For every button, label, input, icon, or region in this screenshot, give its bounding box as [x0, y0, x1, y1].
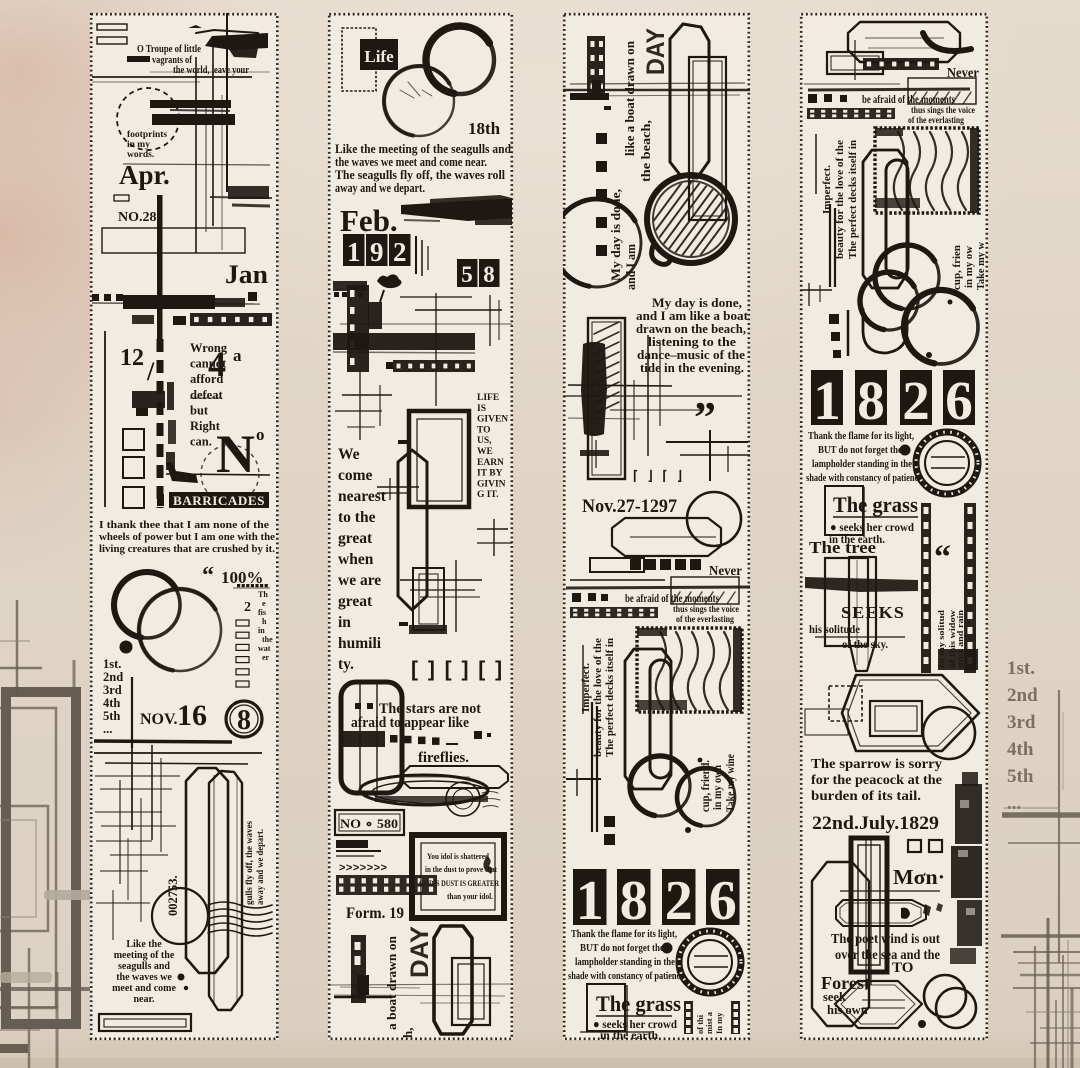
svg-text:come: come: [338, 467, 373, 484]
svg-text:living creatures that are crus: living creatures that are crushed by it.: [99, 544, 275, 555]
svg-text:lampholder standing in the: lampholder standing in the: [575, 957, 675, 968]
svg-text:footprints: footprints: [127, 130, 167, 140]
svg-text:Life: Life: [364, 47, 394, 66]
svg-text:seagulls and: seagulls and: [118, 961, 170, 972]
svg-text:beauty for the love of the: beauty for the love of the: [593, 638, 604, 757]
svg-text:near.: near.: [133, 994, 155, 1005]
svg-text:2nd: 2nd: [1007, 685, 1038, 706]
svg-text:Never: Never: [709, 563, 742, 578]
svg-text:2: 2: [393, 237, 407, 267]
svg-text:Mσn·: Mσn·: [893, 865, 945, 889]
svg-text:and I am: and I am: [623, 244, 638, 290]
svg-text:WE: WE: [477, 447, 493, 457]
svg-text:8: 8: [857, 370, 885, 431]
svg-text:in my ow: in my ow: [963, 246, 975, 288]
svg-text:away and we depart.: away and we depart.: [256, 829, 266, 905]
svg-text:Thank the flame for its light,: Thank the flame for its light,: [808, 431, 914, 442]
svg-text:NO.28: NO.28: [118, 210, 157, 225]
svg-text:in: in: [338, 614, 351, 631]
svg-text:5th: 5th: [103, 709, 120, 723]
svg-text:BARRICADES: BARRICADES: [173, 493, 265, 508]
svg-text:than your idol.: than your idol.: [447, 891, 493, 901]
svg-text:Form. 19: Form. 19: [346, 905, 404, 922]
svg-text:The poet wind is out: The poet wind is out: [831, 931, 940, 946]
svg-text:of the everlasting: of the everlasting: [908, 116, 964, 126]
svg-text:ty.: ty.: [338, 656, 354, 673]
svg-text:LIFE: LIFE: [477, 393, 499, 403]
svg-text:nearest: nearest: [338, 488, 387, 505]
svg-text:beauty for the love of the: beauty for the love of the: [835, 140, 846, 259]
svg-text:the world, leave your: the world, leave your: [173, 65, 249, 76]
svg-text:gulls fly off, the waves: gulls fly off, the waves: [245, 821, 255, 905]
svg-text:16: 16: [177, 699, 207, 732]
svg-text:1st.: 1st.: [103, 657, 121, 671]
svg-text:the: the: [262, 635, 273, 644]
svg-text:2: 2: [244, 600, 251, 615]
svg-text:...: ...: [103, 722, 112, 736]
svg-text:O Troupe of little: O Troupe of little: [137, 44, 201, 55]
svg-text:cup, friend.: cup, friend.: [700, 760, 712, 812]
svg-text:burden of its tail.: burden of its tail.: [811, 789, 921, 804]
svg-text:in my: in my: [127, 140, 150, 150]
svg-text:GOD’S DUST IS GREATER: GOD’S DUST IS GREATER: [419, 878, 500, 888]
svg-text:when: when: [338, 551, 374, 568]
svg-text:1: 1: [813, 370, 841, 431]
svg-text:>>>>>>>: >>>>>>>: [339, 862, 387, 874]
svg-text:9: 9: [370, 237, 384, 267]
svg-text:like a boat drawn on: like a boat drawn on: [623, 41, 637, 156]
svg-text:the waves we: the waves we: [116, 972, 172, 983]
svg-text:shade with constancy of patien: shade with constancy of patience.: [568, 971, 686, 982]
svg-text:The perfect decks itself in: The perfect decks itself in: [605, 638, 616, 757]
svg-text:2: 2: [665, 870, 693, 932]
svg-text:shade with constancy of patien: shade with constancy of patience.: [806, 473, 924, 484]
svg-text:8: 8: [483, 262, 495, 287]
svg-text:in my own: in my own: [712, 764, 724, 810]
svg-text:in: in: [258, 626, 265, 635]
svg-text:great: great: [338, 593, 373, 610]
svg-text:TO: TO: [892, 960, 913, 976]
svg-text:GIVEN: GIVEN: [477, 415, 508, 425]
svg-text:we are: we are: [338, 572, 381, 589]
svg-text:his solitude: his solitude: [809, 624, 860, 636]
svg-text:SEEKS: SEEKS: [841, 603, 905, 622]
svg-text:The perfect decks itself in: The perfect decks itself in: [848, 140, 859, 259]
svg-text:The seagulls fly off, the wave: The seagulls fly off, the waves roll: [335, 168, 505, 182]
svg-text:thus sings the voice: thus sings the voice: [911, 106, 975, 116]
svg-text:er: er: [262, 653, 270, 662]
svg-text:1st.: 1st.: [1007, 658, 1035, 679]
svg-text:Like the meeting of the seagul: Like the meeting of the seagulls and: [335, 142, 511, 156]
svg-text:22nd.July.1829: 22nd.July.1829: [812, 813, 939, 834]
svg-text:DAY: DAY: [642, 28, 670, 75]
svg-text:but: but: [190, 403, 209, 417]
svg-text:tide in the evening.: tide in the evening.: [640, 361, 744, 375]
svg-text:”: ”: [694, 393, 716, 442]
svg-text:and I am like a boat: and I am like a boat: [636, 309, 749, 323]
svg-text:Imperfect.: Imperfect.: [822, 165, 833, 214]
svg-text:defeat: defeat: [190, 388, 223, 402]
svg-text:dance–music of the: dance–music of the: [637, 348, 745, 362]
svg-text:The sparrow is sorry: The sparrow is sorry: [811, 757, 942, 772]
svg-text:My day is done,: My day is done,: [652, 296, 742, 310]
svg-text:the beach,: the beach,: [639, 120, 653, 182]
svg-text:In my: In my: [714, 1012, 724, 1034]
svg-text:BUT do not forget the: BUT do not forget the: [580, 943, 665, 954]
svg-text:2nd: 2nd: [103, 670, 123, 684]
svg-text:8: 8: [237, 705, 251, 736]
svg-text:meeting of the: meeting of the: [114, 950, 175, 961]
svg-text:4th: 4th: [103, 696, 120, 710]
svg-text:...: ...: [1007, 793, 1021, 814]
svg-text:G IT.: G IT.: [477, 490, 498, 500]
svg-text:Th: Th: [258, 590, 268, 599]
svg-text:EARN: EARN: [477, 458, 504, 468]
svg-text:The grass: The grass: [833, 492, 918, 517]
svg-text:US,: US,: [477, 436, 492, 446]
svg-text:of the everlasting: of the everlasting: [676, 615, 734, 625]
svg-text:GIVIN: GIVIN: [477, 479, 506, 489]
svg-text:Take my w: Take my w: [975, 242, 987, 290]
svg-text:DAY: DAY: [406, 926, 434, 978]
svg-text:of the sky.: of the sky.: [842, 639, 888, 651]
svg-text:1: 1: [576, 870, 604, 932]
svg-text:over the sea and the: over the sea and the: [835, 947, 940, 962]
svg-text:thus sings the voice: thus sings the voice: [673, 605, 739, 615]
svg-text:fis: fis: [258, 608, 266, 617]
svg-text:meet and come: meet and come: [112, 983, 176, 994]
svg-text:IS: IS: [477, 404, 486, 414]
svg-text:6: 6: [945, 370, 973, 431]
svg-text:for the peacock at the: for the peacock at the: [811, 773, 942, 788]
svg-text:1: 1: [347, 237, 361, 267]
svg-text:listening to the: listening to the: [648, 335, 736, 349]
svg-text:Nov.27-1297: Nov.27-1297: [582, 497, 677, 517]
svg-text:18th: 18th: [468, 119, 501, 138]
svg-text:5: 5: [461, 262, 473, 287]
svg-text:3rd: 3rd: [103, 683, 122, 697]
svg-text:12: 12: [120, 345, 144, 371]
svg-text:to the: to the: [338, 509, 376, 526]
svg-text:3rd: 3rd: [1007, 712, 1036, 733]
svg-text:Jan: Jan: [225, 259, 268, 289]
svg-text:/: /: [146, 357, 155, 386]
svg-text:h,: h,: [400, 1028, 415, 1038]
svg-text:lampholder standing in the: lampholder standing in the: [812, 459, 912, 470]
svg-text:IT BY: IT BY: [477, 469, 503, 479]
svg-text:⌈ ⌋ ⌈ ⌋: ⌈ ⌋ ⌈ ⌋: [633, 468, 685, 483]
svg-text:afraid to appear like: afraid to appear like: [351, 715, 470, 731]
svg-text:TO: TO: [477, 425, 491, 435]
svg-text:a boat drawn on: a boat drawn on: [385, 936, 399, 1030]
svg-text:002753.: 002753.: [166, 875, 180, 916]
svg-text:drawn on the beach,: drawn on the beach,: [636, 322, 746, 336]
svg-text:“: “: [202, 563, 214, 589]
svg-text:humili: humili: [338, 635, 382, 652]
svg-text:2: 2: [902, 370, 930, 431]
svg-text:o: o: [256, 425, 265, 444]
svg-text:6: 6: [709, 870, 737, 932]
svg-text:a: a: [233, 346, 242, 365]
svg-text:BUT do not forget the: BUT do not forget the: [818, 445, 903, 456]
svg-text:mist a: mist a: [704, 1011, 714, 1034]
svg-text:cup, frien: cup, frien: [951, 245, 963, 290]
svg-text:NO ∘ 580: NO ∘ 580: [340, 816, 398, 831]
svg-text:The tree: The tree: [809, 538, 876, 557]
svg-text:words.: words.: [127, 150, 154, 160]
svg-text:fireflies.: fireflies.: [418, 750, 469, 766]
svg-text:Take my wine: Take my wine: [725, 754, 737, 812]
svg-text:[ ] [ ] [ ]: [ ] [ ] [ ]: [411, 658, 504, 681]
svg-text:“: “: [934, 539, 951, 576]
svg-text:Like the: Like the: [126, 939, 162, 950]
svg-text:4: 4: [208, 344, 226, 384]
svg-text:h: h: [262, 617, 267, 626]
svg-text:Thank the flame for its light,: Thank the flame for its light,: [571, 929, 677, 940]
svg-text:We: We: [338, 446, 360, 463]
svg-text:I thank thee that I am none of: I thank thee that I am none of the: [99, 520, 269, 531]
svg-text:8: 8: [620, 870, 648, 932]
svg-text:great: great: [338, 530, 373, 547]
svg-text:wat: wat: [258, 644, 271, 653]
svg-text:e: e: [262, 599, 266, 608]
svg-text:in the earth: in the earth: [600, 1028, 658, 1042]
svg-text:wheels of power but I am one w: wheels of power but I am one with the: [99, 532, 275, 543]
svg-text:can.: can.: [190, 435, 212, 449]
svg-text:NOV.: NOV.: [140, 711, 178, 728]
svg-text:4th: 4th: [1007, 739, 1034, 760]
svg-text:5th: 5th: [1007, 766, 1034, 787]
svg-text:The grass: The grass: [596, 991, 681, 1016]
svg-text:Feb.: Feb.: [340, 203, 398, 238]
svg-text:You idol is shattered: You idol is shattered: [427, 851, 489, 861]
svg-text:the waves we meet and come nea: the waves we meet and come near.: [335, 155, 487, 169]
svg-text:away and we depart.: away and we depart.: [335, 181, 425, 195]
